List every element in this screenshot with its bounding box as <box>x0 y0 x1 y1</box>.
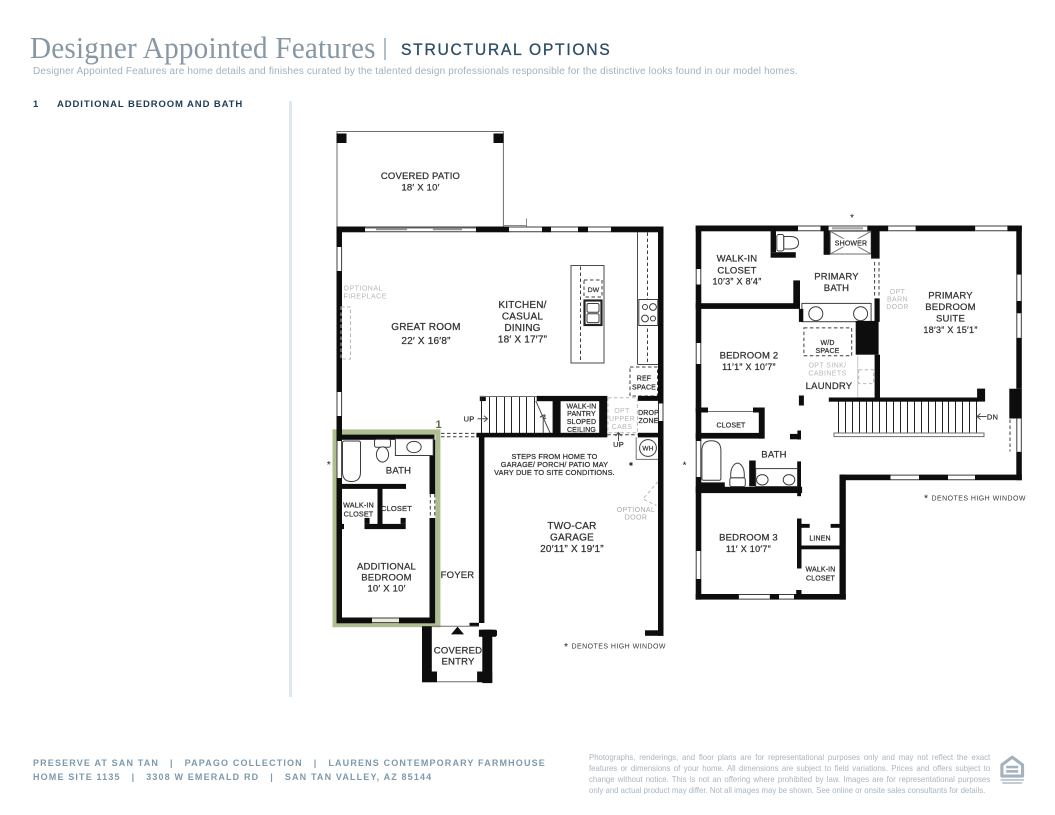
svg-text:CLOSET: CLOSET <box>806 576 835 583</box>
svg-text:*: * <box>682 460 686 472</box>
svg-text:18′ X 10′: 18′ X 10′ <box>401 183 439 194</box>
svg-text:10′ X 10′: 10′ X 10′ <box>367 584 405 595</box>
svg-text:20′11” X 19′1”: 20′11” X 19′1” <box>540 544 604 555</box>
svg-text:BATH: BATH <box>761 450 786 461</box>
svg-text:OPT: OPT <box>890 289 906 296</box>
svg-text:SUITE: SUITE <box>936 314 965 325</box>
svg-text:WALK-IN: WALK-IN <box>343 501 374 510</box>
svg-text:CEILING: CEILING <box>567 427 596 434</box>
svg-text:11′ X 10′7”: 11′ X 10′7” <box>726 544 771 554</box>
svg-text:BATH: BATH <box>386 466 411 477</box>
svg-text:DOOR: DOOR <box>886 304 909 311</box>
svg-text:KITCHEN/: KITCHEN/ <box>498 300 546 311</box>
svg-text:DINING: DINING <box>504 323 540 334</box>
svg-text:DROP: DROP <box>638 410 659 417</box>
svg-text:SLOPED: SLOPED <box>567 419 596 426</box>
svg-text:BATH: BATH <box>824 283 849 294</box>
svg-text:COVERED PATIO: COVERED PATIO <box>381 171 460 182</box>
svg-text:OPTIONAL: OPTIONAL <box>617 507 656 514</box>
svg-text:ADDITIONAL: ADDITIONAL <box>357 562 416 573</box>
svg-text:WALK-IN: WALK-IN <box>717 254 758 265</box>
svg-text:FOYER: FOYER <box>441 570 475 581</box>
svg-text:DENOTES HIGH WINDOW: DENOTES HIGH WINDOW <box>932 496 1027 503</box>
svg-text:11′1” X 10′7”: 11′1” X 10′7” <box>722 362 776 372</box>
svg-text:DENOTES HIGH WINDOW: DENOTES HIGH WINDOW <box>572 644 667 651</box>
svg-text:WH: WH <box>642 446 653 453</box>
svg-text:FIREPLACE: FIREPLACE <box>344 294 387 301</box>
svg-text:*: * <box>327 459 331 471</box>
svg-text:UP: UP <box>613 440 624 449</box>
svg-text:UP: UP <box>464 415 475 424</box>
svg-text:DW: DW <box>588 287 600 294</box>
svg-text:OPTIONAL: OPTIONAL <box>344 286 383 293</box>
svg-text:WALK-IN: WALK-IN <box>567 403 597 410</box>
svg-text:LINEN: LINEN <box>809 536 830 543</box>
svg-text:W/D: W/D <box>820 340 834 347</box>
svg-text:DN: DN <box>987 413 998 422</box>
svg-text:UPPER: UPPER <box>609 416 635 423</box>
svg-text:10′3” X 8′4”: 10′3” X 8′4” <box>713 277 762 287</box>
svg-text:CABS: CABS <box>612 424 633 431</box>
svg-text:*: * <box>924 493 928 505</box>
svg-text:ZONE: ZONE <box>638 418 658 425</box>
svg-text:REF: REF <box>637 376 651 383</box>
svg-text:PRIMARY: PRIMARY <box>814 272 859 283</box>
svg-text:BEDROOM: BEDROOM <box>925 302 976 313</box>
svg-text:CLOSET: CLOSET <box>717 423 746 430</box>
svg-text:PANTRY: PANTRY <box>567 411 596 418</box>
svg-text:ENTRY: ENTRY <box>441 657 474 668</box>
svg-text:GREAT ROOM: GREAT ROOM <box>391 322 460 333</box>
svg-text:18′ X 17′7”: 18′ X 17′7” <box>498 335 547 346</box>
svg-text:OPT: OPT <box>614 408 630 415</box>
svg-text:CASUAL: CASUAL <box>502 312 543 323</box>
svg-text:SPACE: SPACE <box>632 385 656 392</box>
svg-text:WALK-IN: WALK-IN <box>806 567 836 574</box>
svg-text:BEDROOM 2: BEDROOM 2 <box>720 351 779 362</box>
svg-text:22′ X 16′8”: 22′ X 16′8” <box>401 336 450 347</box>
svg-text:CLOSET: CLOSET <box>344 510 374 519</box>
svg-text:TWO-CAR: TWO-CAR <box>547 521 596 532</box>
svg-text:CLOSET: CLOSET <box>381 504 412 513</box>
svg-text:BARN: BARN <box>887 297 908 304</box>
svg-text:SHOWER: SHOWER <box>835 240 867 247</box>
svg-text:CABINETS: CABINETS <box>808 371 846 378</box>
svg-text:GARAGE: GARAGE <box>550 533 594 544</box>
svg-text:*: * <box>850 212 854 224</box>
svg-text:COVERED: COVERED <box>434 646 482 657</box>
svg-text:SPACE: SPACE <box>816 348 840 355</box>
svg-text:PRIMARY: PRIMARY <box>928 291 973 302</box>
svg-text:LAUNDRY: LAUNDRY <box>806 381 853 392</box>
svg-text:18′3” X 15′1”: 18′3” X 15′1” <box>923 325 977 335</box>
svg-text:CLOSET: CLOSET <box>717 266 756 277</box>
svg-text:OPT SINK/: OPT SINK/ <box>808 363 846 370</box>
svg-text:*: * <box>564 641 568 653</box>
svg-text:DOOR: DOOR <box>625 515 648 522</box>
svg-text:VARY DUE TO SITE CONDITIONS.: VARY DUE TO SITE CONDITIONS. <box>494 468 615 477</box>
svg-text:1: 1 <box>435 419 441 431</box>
svg-text:BEDROOM: BEDROOM <box>361 573 412 584</box>
svg-text:BEDROOM 3: BEDROOM 3 <box>719 533 778 544</box>
